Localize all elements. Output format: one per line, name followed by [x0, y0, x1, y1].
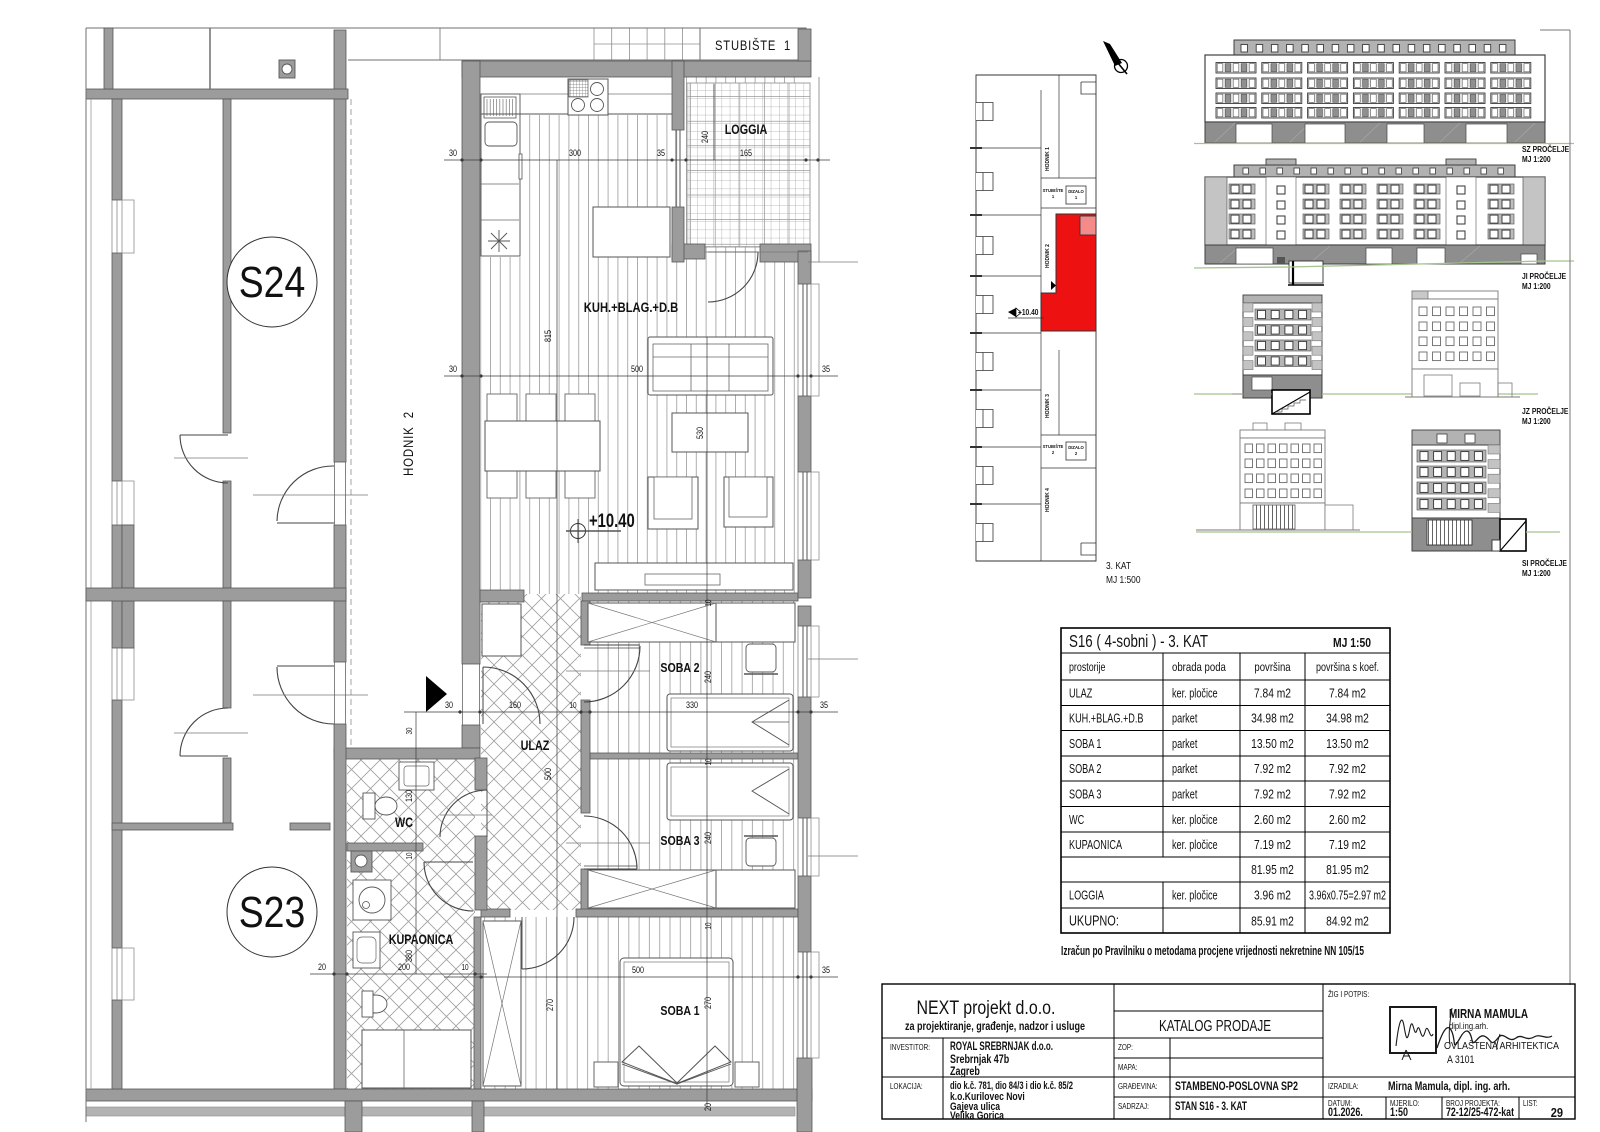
- svg-text:MJ 1:200: MJ 1:200: [1522, 281, 1551, 291]
- svg-text:34.98 m2: 34.98 m2: [1326, 713, 1369, 726]
- svg-text:JZ PROČELJE: JZ PROČELJE: [1522, 406, 1568, 416]
- svg-text:HODNIK 2: HODNIK 2: [1045, 244, 1051, 268]
- svg-text:UKUPNO:: UKUPNO:: [1069, 912, 1119, 929]
- svg-text:ker. pločice: ker. pločice: [1172, 687, 1218, 701]
- svg-text:81.95 m2: 81.95 m2: [1251, 864, 1294, 877]
- svg-text:S23: S23: [239, 887, 306, 937]
- svg-text:30: 30: [449, 148, 457, 158]
- svg-text:165: 165: [740, 148, 752, 158]
- svg-text:Srebrnjak 47b: Srebrnjak 47b: [950, 1054, 1009, 1066]
- svg-text:SZ PROČELJE: SZ PROČELJE: [1522, 144, 1569, 154]
- svg-text:KATALOG PRODAJE: KATALOG PRODAJE: [1159, 1018, 1271, 1035]
- svg-text:130: 130: [404, 790, 414, 802]
- svg-text:7.92 m2: 7.92 m2: [1254, 763, 1291, 776]
- svg-text:S24: S24: [239, 257, 306, 307]
- svg-text:KUPAONICA: KUPAONICA: [389, 932, 454, 947]
- svg-text:3.96 m2: 3.96 m2: [1254, 890, 1291, 903]
- svg-text:81.95 m2: 81.95 m2: [1326, 864, 1369, 877]
- svg-text:S16 ( 4-sobni ) - 3. KAT: S16 ( 4-sobni ) - 3. KAT: [1069, 631, 1208, 651]
- svg-text:HODNIK 1: HODNIK 1: [1045, 147, 1051, 171]
- svg-text:WC: WC: [1069, 813, 1084, 827]
- svg-text:35: 35: [820, 700, 828, 710]
- svg-text:1:50: 1:50: [1390, 1107, 1408, 1119]
- svg-text:STUBIŠTE: STUBIŠTE: [1043, 188, 1064, 193]
- svg-text:10: 10: [569, 700, 576, 710]
- svg-text:+10.40: +10.40: [1018, 307, 1038, 317]
- svg-text:parket: parket: [1172, 763, 1197, 777]
- svg-text:35: 35: [657, 148, 665, 158]
- svg-text:A 3101: A 3101: [1447, 1054, 1475, 1066]
- svg-text:MJ 1:200: MJ 1:200: [1522, 416, 1551, 426]
- svg-text:3. KAT: 3. KAT: [1106, 560, 1131, 572]
- svg-text:Izračun po Pravilniku o metoda: Izračun po Pravilniku o metodama procjen…: [1061, 944, 1364, 958]
- svg-text:prostorije: prostorije: [1069, 661, 1106, 675]
- svg-text:STAMBENO-POSLOVNA SP2: STAMBENO-POSLOVNA SP2: [1175, 1081, 1298, 1093]
- svg-text:WC: WC: [395, 815, 413, 830]
- svg-text:7.92 m2: 7.92 m2: [1329, 763, 1366, 776]
- svg-text:10: 10: [703, 599, 713, 606]
- svg-text:84.92 m2: 84.92 m2: [1326, 916, 1369, 929]
- svg-text:240: 240: [703, 832, 713, 844]
- svg-text:20: 20: [318, 962, 326, 972]
- svg-text:SADRZAJ:: SADRZAJ:: [1118, 1101, 1149, 1111]
- svg-text:INVESTITOR:: INVESTITOR:: [890, 1042, 930, 1052]
- svg-text:500: 500: [631, 364, 643, 374]
- svg-text:ŽIG I POTPIS:: ŽIG I POTPIS:: [1328, 989, 1369, 999]
- svg-text:300: 300: [569, 148, 581, 158]
- svg-text:SOBA 1: SOBA 1: [660, 1004, 700, 1018]
- svg-text:2.60 m2: 2.60 m2: [1329, 814, 1366, 827]
- svg-text:72-12/25-472-kat: 72-12/25-472-kat: [1446, 1107, 1514, 1119]
- svg-text:IZRADILA:: IZRADILA:: [1328, 1081, 1359, 1091]
- svg-text:330: 330: [686, 700, 698, 710]
- svg-text:10: 10: [703, 758, 713, 765]
- svg-text:SOBA 2: SOBA 2: [660, 661, 699, 675]
- svg-text:GRAĐEVINA:: GRAĐEVINA:: [1118, 1081, 1157, 1091]
- svg-text:530: 530: [695, 427, 705, 439]
- svg-text:ker. pločice: ker. pločice: [1172, 813, 1218, 827]
- svg-text:ZOP:: ZOP:: [1118, 1042, 1133, 1052]
- svg-text:240: 240: [703, 671, 713, 683]
- svg-text:34.98 m2: 34.98 m2: [1251, 713, 1294, 726]
- svg-text:KUH.+BLAG.+D.B: KUH.+BLAG.+D.B: [584, 300, 678, 315]
- svg-text:LOGGIA: LOGGIA: [725, 122, 768, 137]
- svg-text:13.50 m2: 13.50 m2: [1251, 738, 1294, 751]
- svg-text:7.84 m2: 7.84 m2: [1254, 687, 1291, 700]
- svg-text:7.84 m2: 7.84 m2: [1329, 687, 1366, 700]
- svg-text:HODNIK 3: HODNIK 3: [1045, 394, 1051, 418]
- svg-text:35: 35: [822, 364, 830, 374]
- svg-text:LOKACIJA:: LOKACIJA:: [890, 1081, 923, 1091]
- svg-text:ker. pločice: ker. pločice: [1172, 839, 1218, 853]
- svg-text:SOBA 3: SOBA 3: [660, 834, 700, 848]
- svg-text:parket: parket: [1172, 788, 1197, 802]
- svg-text:SOBA 1: SOBA 1: [1069, 737, 1101, 751]
- svg-text:ULAZ: ULAZ: [1069, 687, 1093, 701]
- svg-text:7.19 m2: 7.19 m2: [1254, 839, 1291, 852]
- svg-text:13.50 m2: 13.50 m2: [1326, 738, 1369, 751]
- svg-text:10: 10: [703, 922, 713, 929]
- svg-text:01.2026.: 01.2026.: [1328, 1107, 1363, 1119]
- svg-text:površina: površina: [1254, 661, 1291, 674]
- svg-text:JI PROČELJE: JI PROČELJE: [1522, 271, 1566, 281]
- svg-text:MJ 1:200: MJ 1:200: [1522, 568, 1551, 578]
- svg-text:MJ 1:50: MJ 1:50: [1333, 635, 1371, 650]
- svg-text:10: 10: [461, 962, 468, 972]
- svg-text:270: 270: [545, 999, 555, 1011]
- svg-text:MIRNA MAMULA: MIRNA MAMULA: [1449, 1007, 1528, 1021]
- svg-text:270: 270: [703, 997, 713, 1009]
- svg-text:3.96x0.75=2.97 m2: 3.96x0.75=2.97 m2: [1309, 889, 1386, 903]
- svg-text:2.60 m2: 2.60 m2: [1254, 814, 1291, 827]
- svg-text:7.92 m2: 7.92 m2: [1329, 788, 1366, 801]
- svg-text:ULAZ: ULAZ: [521, 738, 550, 753]
- svg-text:ROYAL SREBRNJAK d.o.o.: ROYAL SREBRNJAK d.o.o.: [950, 1041, 1053, 1053]
- svg-text:MJ 1:500: MJ 1:500: [1106, 574, 1141, 586]
- svg-text:SOBA 3: SOBA 3: [1069, 788, 1101, 802]
- svg-text:+10.40: +10.40: [589, 510, 635, 531]
- svg-text:10: 10: [404, 852, 414, 859]
- svg-text:30: 30: [449, 364, 457, 374]
- svg-text:KUH.+BLAG.+D.B: KUH.+BLAG.+D.B: [1069, 712, 1144, 726]
- svg-text:MAPA:: MAPA:: [1118, 1062, 1137, 1072]
- svg-text:500: 500: [632, 965, 644, 975]
- svg-text:NEXT projekt d.o.o.: NEXT projekt d.o.o.: [917, 997, 1056, 1019]
- svg-text:380: 380: [404, 950, 414, 962]
- svg-text:parket: parket: [1172, 737, 1197, 751]
- svg-text:DIZALO: DIZALO: [1068, 189, 1084, 194]
- svg-text:240: 240: [700, 131, 710, 143]
- svg-text:ker. pločice: ker. pločice: [1172, 889, 1218, 903]
- svg-text:STUBIŠTE: STUBIŠTE: [1043, 444, 1064, 449]
- svg-text:obrada poda: obrada poda: [1172, 661, 1227, 674]
- svg-text:za projektiranje, građenje, na: za projektiranje, građenje, nadzor i usl…: [905, 1021, 1085, 1033]
- svg-text:500: 500: [543, 768, 553, 780]
- svg-text:dipl.ing.arh.: dipl.ing.arh.: [1449, 1020, 1488, 1031]
- svg-text:35: 35: [822, 965, 830, 975]
- svg-text:20: 20: [703, 1103, 713, 1111]
- svg-text:7.92 m2: 7.92 m2: [1254, 788, 1291, 801]
- svg-text:KUPAONICA: KUPAONICA: [1069, 839, 1123, 853]
- svg-text:STUBIŠTE 1: STUBIŠTE 1: [715, 37, 791, 54]
- svg-text:SI PROČELJE: SI PROČELJE: [1522, 558, 1567, 568]
- svg-text:30: 30: [404, 727, 414, 734]
- svg-text:SOBA 2: SOBA 2: [1069, 763, 1101, 777]
- svg-text:Zagreb: Zagreb: [950, 1066, 980, 1078]
- svg-text:85.91 m2: 85.91 m2: [1251, 916, 1294, 929]
- svg-text:29: 29: [1551, 1105, 1564, 1120]
- svg-text:7.19 m2: 7.19 m2: [1329, 839, 1366, 852]
- svg-text:HODNIK 2: HODNIK 2: [401, 411, 416, 476]
- svg-text:200: 200: [398, 962, 410, 972]
- svg-text:STAN S16 - 3. KAT: STAN S16 - 3. KAT: [1175, 1101, 1247, 1113]
- svg-text:parket: parket: [1172, 712, 1197, 726]
- svg-text:HODNIK 4: HODNIK 4: [1045, 488, 1051, 512]
- svg-text:Velika Gorica: Velika Gorica: [950, 1110, 1004, 1122]
- svg-text:površina s koef.: površina s koef.: [1316, 661, 1379, 675]
- svg-text:160: 160: [509, 700, 521, 710]
- svg-text:LIST:: LIST:: [1523, 1098, 1538, 1108]
- svg-text:815: 815: [543, 330, 553, 342]
- svg-text:LOGGIA: LOGGIA: [1069, 889, 1105, 903]
- svg-text:MJ 1:200: MJ 1:200: [1522, 154, 1551, 164]
- svg-text:OVLAŠTENA ARHITEKTICA: OVLAŠTENA ARHITEKTICA: [1444, 1039, 1559, 1052]
- svg-text:DIZALO: DIZALO: [1068, 445, 1084, 450]
- svg-text:Mirna Mamula, dipl. ing. arh.: Mirna Mamula, dipl. ing. arh.: [1388, 1081, 1510, 1093]
- svg-text:30: 30: [445, 700, 453, 710]
